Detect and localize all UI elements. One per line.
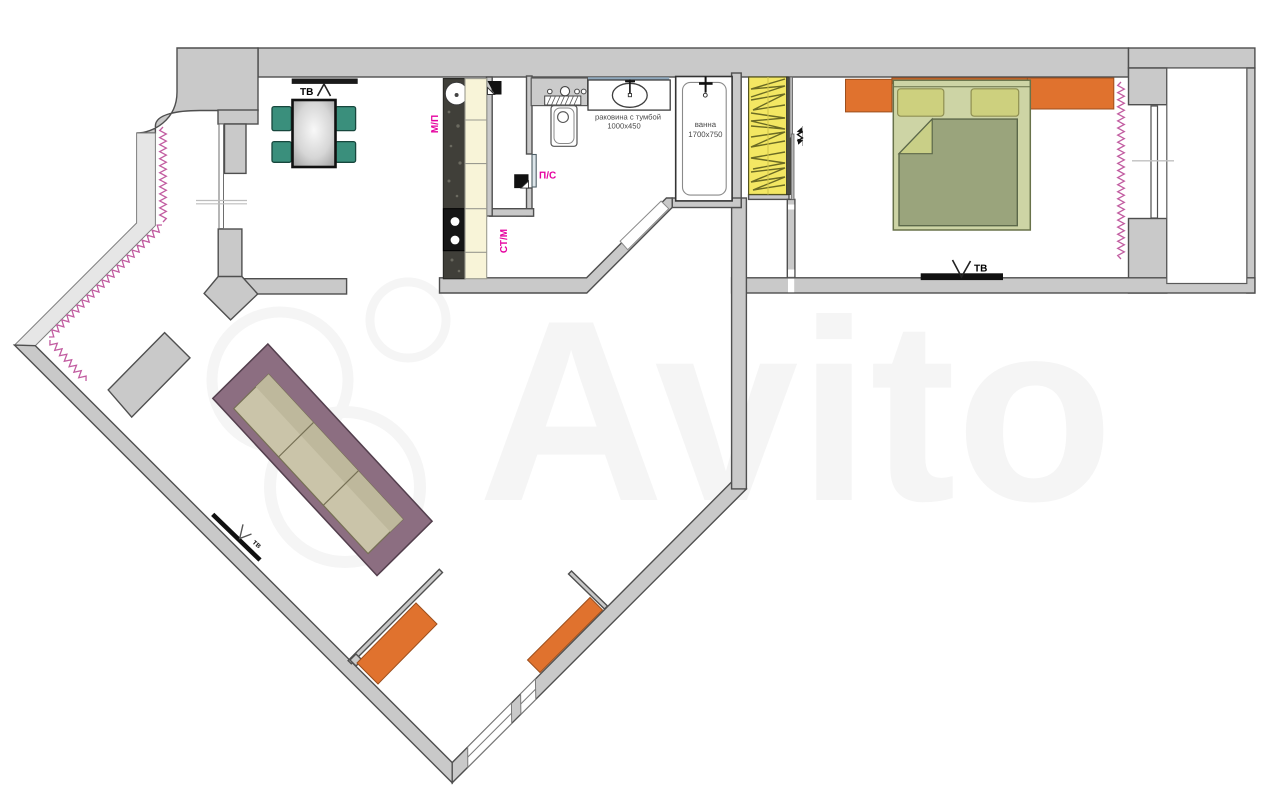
svg-text:Avito: Avito <box>478 266 1113 555</box>
svg-text:1700х750: 1700х750 <box>688 130 723 139</box>
svg-text:ванна: ванна <box>695 120 717 129</box>
svg-text:М/П: М/П <box>430 115 441 133</box>
svg-text:П/С: П/С <box>539 171 556 182</box>
svg-text:ТВ: ТВ <box>300 87 313 98</box>
svg-text:раковина с тумбой: раковина с тумбой <box>595 113 661 122</box>
svg-text:1000х450: 1000х450 <box>607 122 640 131</box>
svg-text:СТ/М: СТ/М <box>499 229 510 253</box>
svg-text:ТВ: ТВ <box>974 264 987 275</box>
